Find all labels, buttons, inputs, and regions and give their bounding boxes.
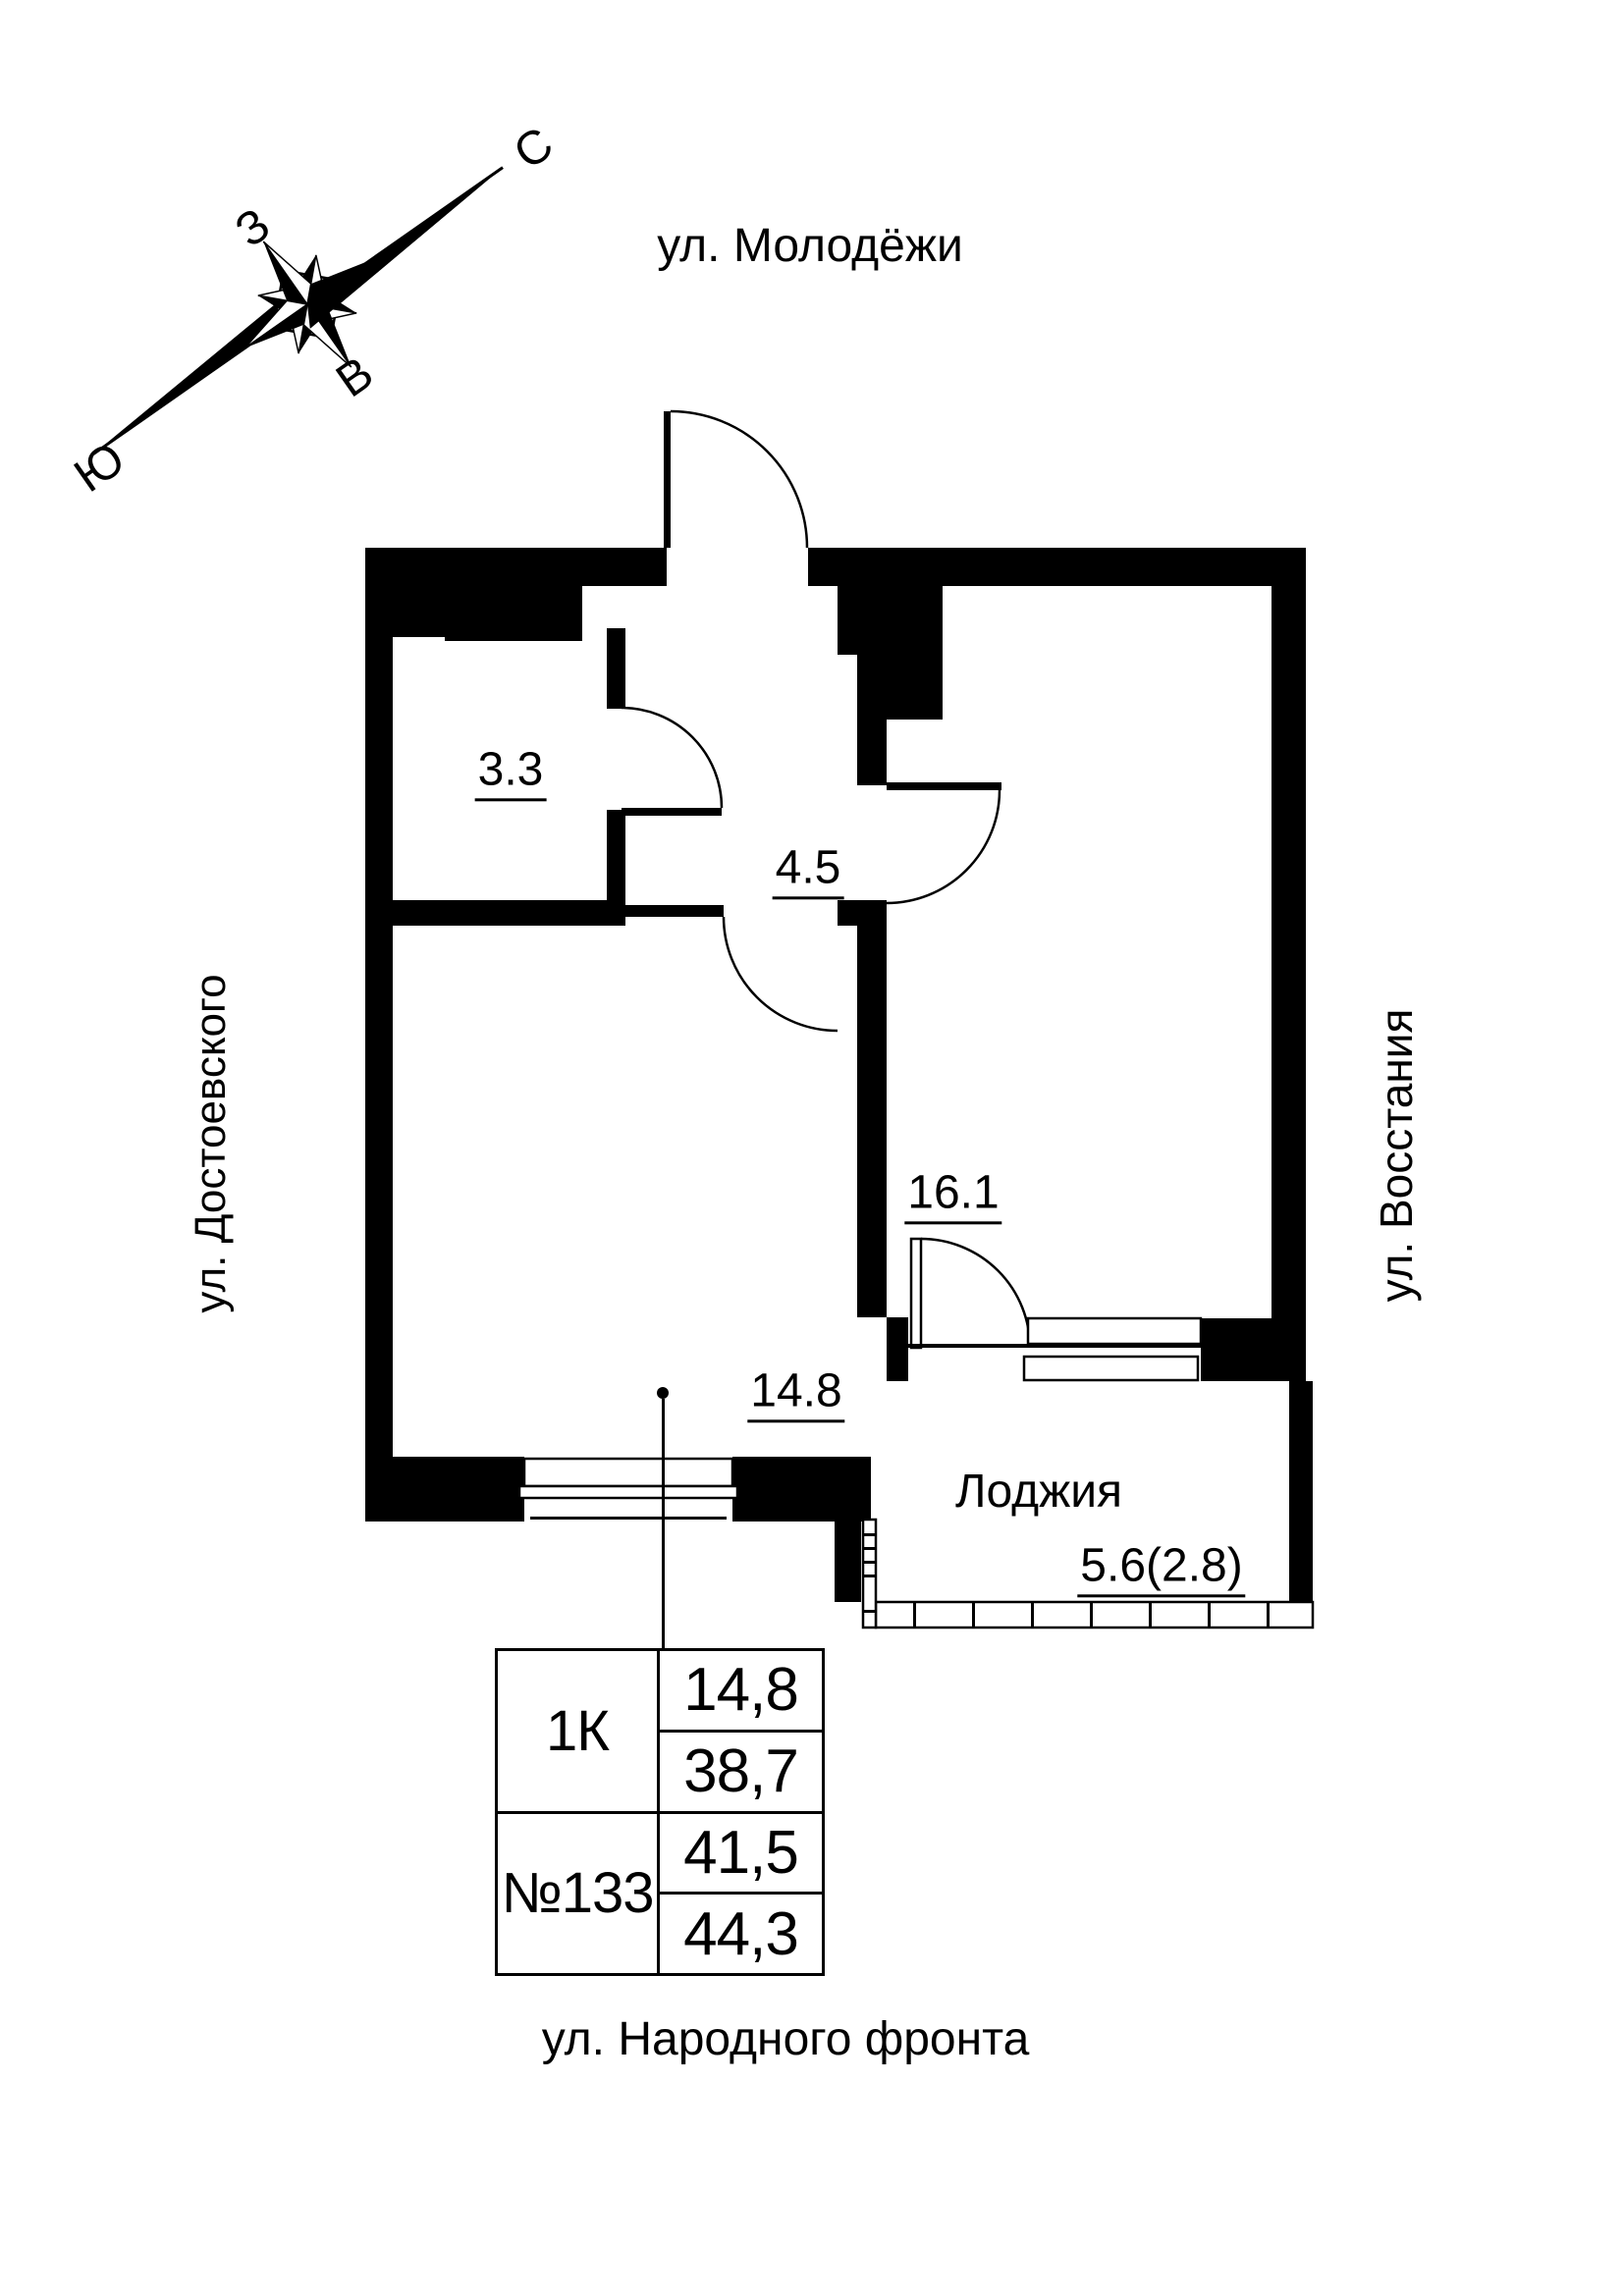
room-14-8-window xyxy=(524,1459,732,1486)
room-area-label-3-3: 3.3 xyxy=(475,745,547,801)
room-area-label-16-1: 16.1 xyxy=(904,1168,1001,1224)
compass-rose-icon xyxy=(49,105,546,517)
loggia-name-label: Лоджия xyxy=(955,1468,1122,1517)
door-room-14-8 xyxy=(724,917,838,1031)
door-room-3-3 xyxy=(622,708,722,816)
living-area-cell: 14,8 xyxy=(660,1651,822,1733)
info-table-right-column: 14,8 38,7 41,5 44,3 xyxy=(660,1651,822,1973)
room-area-label-4-5: 4.5 xyxy=(773,843,844,899)
apartment-info-table: 1К №133 14,8 38,7 41,5 44,3 xyxy=(495,1648,825,1976)
street-label-right: ул. Восстания xyxy=(1373,1009,1420,1303)
walls xyxy=(365,548,1313,1629)
apartment-number-cell: №133 xyxy=(498,1814,657,1974)
street-label-left: ул. Достоевского xyxy=(189,974,234,1312)
room-area-label-14-8: 14.8 xyxy=(747,1366,844,1422)
area-total-cell: 44,3 xyxy=(660,1895,822,1973)
balcony-door xyxy=(911,1239,1030,1348)
loggia-window-lower xyxy=(1024,1357,1198,1380)
entrance-door xyxy=(664,411,807,548)
floor-plan-page: С Ю З В ул. Молодёжи ул. Достоевского ул… xyxy=(0,0,1623,2296)
area-reduced-cell: 41,5 xyxy=(660,1814,822,1896)
loggia-area-label: 5.6(2.8) xyxy=(1077,1541,1245,1597)
street-label-top: ул. Молодёжи xyxy=(657,222,963,271)
area-without-loggia-cell: 38,7 xyxy=(660,1733,822,1814)
street-label-bottom: ул. Народного фронта xyxy=(542,2015,1030,2064)
loggia-window-upper xyxy=(1028,1318,1201,1344)
door-room-16-1 xyxy=(887,782,1001,903)
apartment-type-cell: 1К xyxy=(498,1651,657,1814)
info-table-left-column: 1К №133 xyxy=(498,1651,660,1973)
